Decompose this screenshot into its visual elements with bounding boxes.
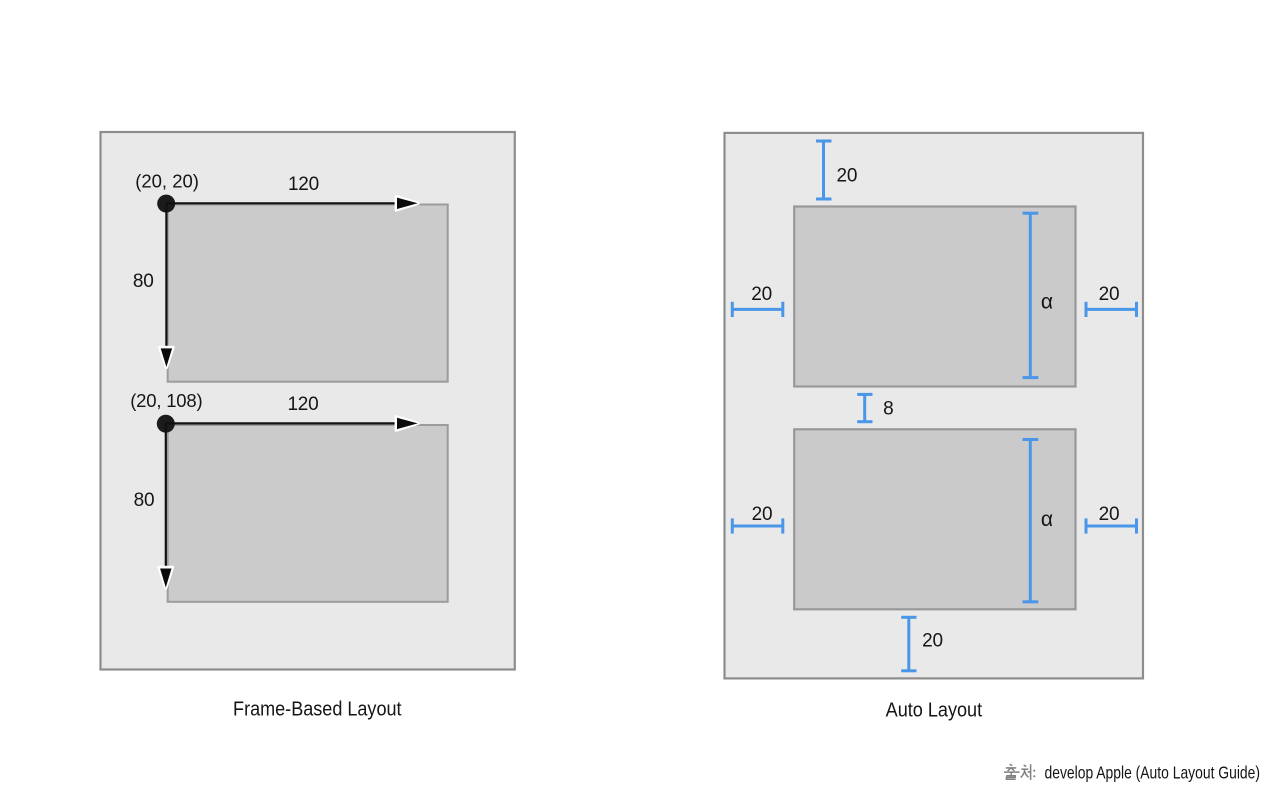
svg-text:120: 120 (288, 174, 319, 195)
svg-text:α: α (1041, 508, 1053, 531)
svg-text:8: 8 (883, 399, 893, 420)
svg-text:Auto Layout: Auto Layout (886, 700, 983, 722)
svg-text:α: α (1041, 290, 1053, 313)
svg-text:20: 20 (752, 504, 773, 525)
svg-text:(20, 20): (20, 20) (135, 171, 199, 192)
svg-text:20: 20 (1099, 284, 1120, 305)
svg-text:20: 20 (1099, 504, 1120, 525)
svg-text:120: 120 (287, 394, 318, 415)
svg-text:20: 20 (837, 165, 858, 186)
svg-text:80: 80 (133, 271, 154, 292)
svg-text:develop Apple (Auto Layout Gui: develop Apple (Auto Layout Guide) (1045, 762, 1261, 782)
svg-text:20: 20 (751, 284, 772, 305)
svg-text:(20, 108): (20, 108) (130, 390, 202, 411)
svg-text:20: 20 (922, 631, 943, 652)
svg-text:Frame-Based Layout: Frame-Based Layout (233, 699, 402, 721)
svg-text:80: 80 (134, 490, 155, 511)
